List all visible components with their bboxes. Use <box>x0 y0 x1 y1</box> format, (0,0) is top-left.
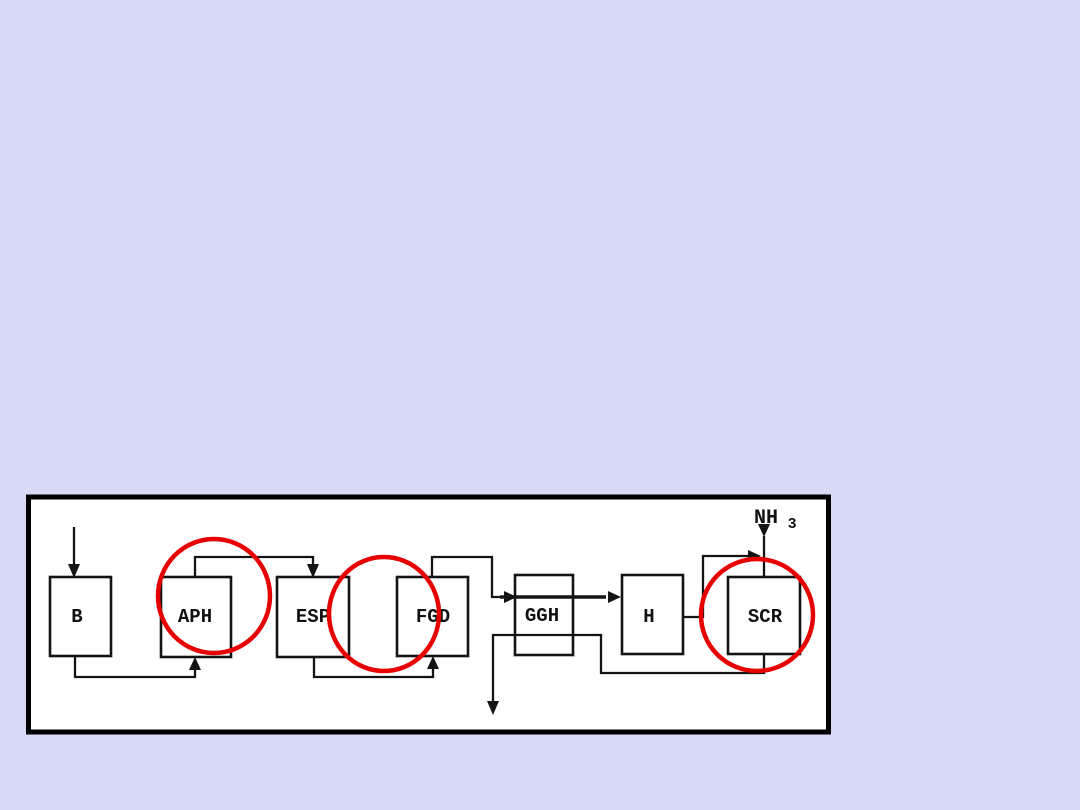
label-b: B <box>71 606 82 628</box>
label-aph: APH <box>178 606 212 628</box>
label-fgd: FGD <box>416 606 450 628</box>
nh3-subscript: 3 <box>788 516 797 533</box>
label-scr: SCR <box>748 606 783 628</box>
process-flow-diagram: B APH ESP FGD GGH H SCR NH 3 <box>0 0 1080 810</box>
label-esp: ESP <box>296 606 330 628</box>
slide: B APH ESP FGD GGH H SCR NH 3 <box>0 0 1080 810</box>
label-ggh: GGH <box>525 605 559 627</box>
label-h: H <box>643 606 654 628</box>
nh3-text: NH <box>754 507 778 530</box>
